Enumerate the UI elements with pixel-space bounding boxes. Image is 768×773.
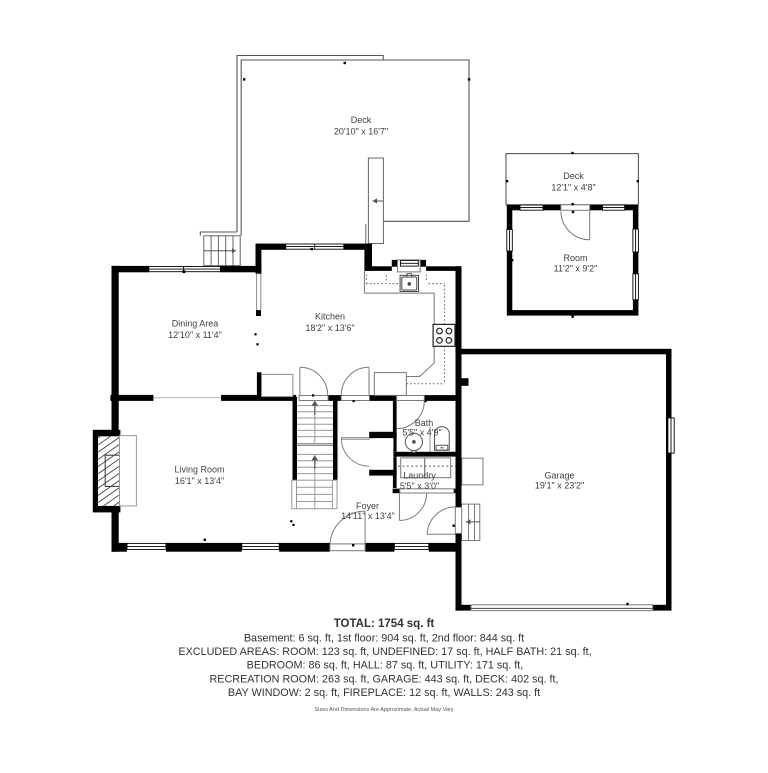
svg-text:Garage: Garage bbox=[544, 471, 574, 481]
svg-text:Laundry: Laundry bbox=[403, 471, 436, 481]
svg-text:12'10" x 11'4": 12'10" x 11'4" bbox=[168, 330, 222, 340]
svg-text:11'2" x 9'2": 11'2" x 9'2" bbox=[554, 264, 598, 274]
svg-text:20'10" x 16'7": 20'10" x 16'7" bbox=[334, 127, 388, 137]
svg-text:18'2" x 13'6": 18'2" x 13'6" bbox=[305, 323, 354, 333]
svg-text:Deck: Deck bbox=[563, 171, 584, 181]
svg-text:Bath: Bath bbox=[415, 418, 434, 428]
svg-text:TOTAL: 1754 sq. ft: TOTAL: 1754 sq. ft bbox=[334, 618, 435, 630]
svg-text:Deck: Deck bbox=[351, 115, 372, 125]
svg-text:12'1" x 4'8": 12'1" x 4'8" bbox=[551, 183, 595, 193]
svg-text:14'11" x 13'4": 14'11" x 13'4" bbox=[341, 511, 395, 521]
svg-text:Room: Room bbox=[563, 253, 587, 263]
svg-text:5'5" x 3'0": 5'5" x 3'0" bbox=[400, 481, 439, 491]
svg-text:Kitchen: Kitchen bbox=[315, 312, 345, 322]
svg-text:Foyer: Foyer bbox=[356, 501, 379, 511]
svg-text:Dining Area: Dining Area bbox=[172, 319, 219, 329]
svg-text:BEDROOM: 86 sq. ft, HALL: 87 s: BEDROOM: 86 sq. ft, HALL: 87 sq. ft, UTI… bbox=[247, 660, 524, 672]
svg-text:Basement: 6 sq. ft, 1st floor:: Basement: 6 sq. ft, 1st floor: 904 sq. f… bbox=[244, 633, 524, 645]
svg-text:BAY WINDOW: 2 sq. ft, FIREPLAC: BAY WINDOW: 2 sq. ft, FIREPLACE: 12 sq. … bbox=[228, 687, 540, 699]
svg-text:19'1" x 23'2": 19'1" x 23'2" bbox=[535, 481, 584, 491]
svg-text:EXCLUDED AREAS: ROOM: 123 sq.: EXCLUDED AREAS: ROOM: 123 sq. ft, UNDEFI… bbox=[178, 646, 591, 658]
svg-text:Living Room: Living Room bbox=[174, 465, 224, 475]
svg-text:RECREATION ROOM: 263 sq. ft, G: RECREATION ROOM: 263 sq. ft, GARAGE: 443… bbox=[209, 673, 558, 685]
svg-text:16'1" x 13'4": 16'1" x 13'4" bbox=[175, 476, 224, 486]
svg-text:Sizes And Dimensions Are Appro: Sizes And Dimensions Are Approximate, Ac… bbox=[315, 707, 454, 713]
svg-text:5'5" x 4'9": 5'5" x 4'9" bbox=[402, 428, 441, 438]
